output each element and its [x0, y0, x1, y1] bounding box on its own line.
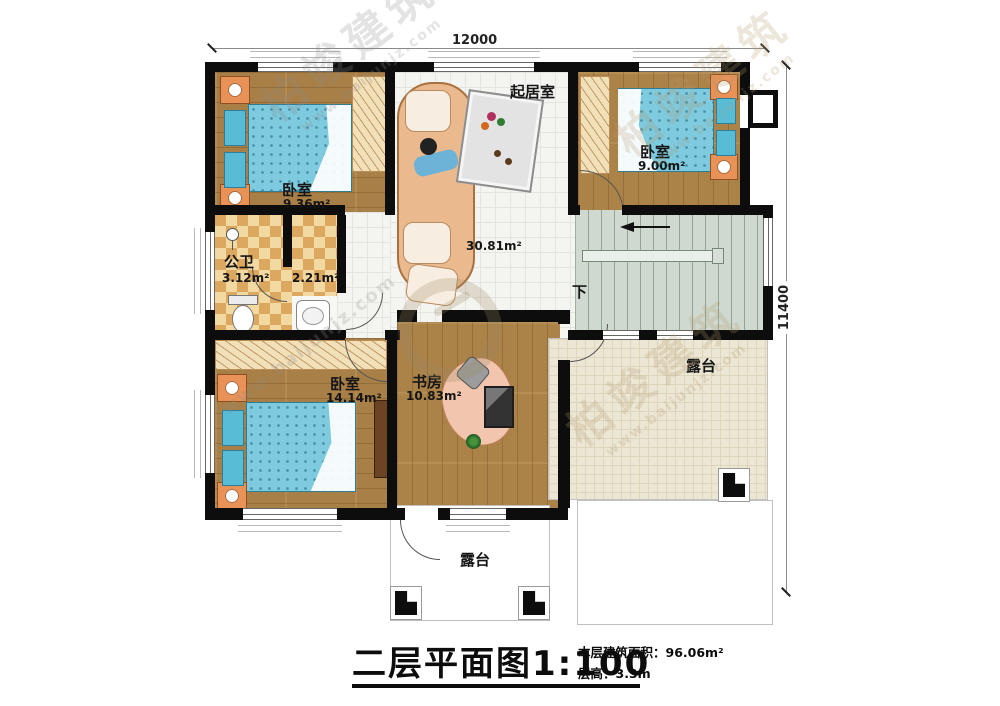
person-head [420, 138, 437, 155]
wall [534, 62, 639, 72]
window [639, 62, 721, 72]
eave-outline [577, 500, 773, 625]
floor-plan-drawing: 12000 11400 下 [0, 0, 1000, 706]
wall [558, 310, 570, 324]
computer-monitor [484, 386, 514, 428]
bed-pillow [716, 130, 736, 156]
wall [639, 330, 657, 340]
window-sill [193, 390, 202, 478]
flower [497, 118, 505, 126]
table-item [505, 158, 512, 165]
bedroom-bottom-left-area: 14.14m² [326, 392, 382, 406]
dimension-label-width: 12000 [448, 33, 501, 48]
nightstand [710, 74, 738, 100]
terrace-bottom-name: 露台 [460, 552, 490, 569]
coffee-table [456, 89, 544, 193]
shower-hose [232, 241, 233, 250]
bathroom-name: 公卫 [224, 254, 254, 271]
wall [438, 508, 450, 520]
terrace-right-name: 露台 [686, 358, 716, 375]
bedroom-top-right-area: 9.00m² [638, 160, 685, 174]
wall [397, 508, 405, 520]
wall [205, 508, 243, 520]
bathroom-area: 3.12m² [222, 272, 269, 286]
bed-pillow [222, 410, 244, 446]
wardrobe [352, 76, 388, 172]
flower [487, 112, 496, 121]
closet-area: 2.21m² [292, 272, 339, 286]
sink-basin [302, 307, 324, 325]
window [450, 508, 506, 520]
wall [568, 205, 580, 215]
stair-direction-arrow [620, 222, 634, 232]
toilet-tank [228, 295, 258, 305]
wall [740, 128, 750, 215]
stairs-down-label: 下 [572, 284, 587, 301]
bay-niche [748, 90, 778, 128]
wall [205, 330, 345, 340]
window-sill [633, 50, 727, 59]
wall [693, 330, 770, 340]
bed-pillow [224, 152, 246, 188]
window [603, 330, 639, 340]
sofa-cushion [405, 263, 460, 308]
wall [387, 330, 397, 520]
study-area: 10.83m² [406, 390, 462, 404]
window-sill [238, 524, 342, 533]
stair-open-edge [575, 215, 576, 330]
nightstand [217, 482, 247, 510]
tv-cabinet [374, 400, 388, 478]
stair-direction-line [634, 226, 670, 228]
bed-pillow [716, 98, 736, 124]
toilet [232, 305, 254, 333]
living-room-area: 30.81m² [466, 240, 522, 254]
window [205, 232, 215, 310]
wall [763, 205, 773, 218]
wall [622, 205, 770, 215]
flower [481, 122, 489, 130]
floor-height-info: 层高：3.3m [578, 663, 651, 682]
window [258, 62, 333, 72]
wall [568, 62, 578, 215]
stairs-floor [575, 210, 765, 338]
wall [385, 62, 395, 215]
pillar [718, 468, 750, 502]
shower-head [226, 228, 239, 241]
window [205, 395, 215, 473]
wall [442, 310, 568, 322]
sofa-cushion [405, 90, 451, 132]
title-underline [352, 684, 640, 688]
stair-newel [712, 248, 724, 264]
nightstand [217, 374, 247, 402]
nightstand [220, 76, 250, 104]
table-item [494, 150, 501, 157]
stair-handrail [582, 250, 718, 262]
window [243, 508, 337, 520]
wardrobe [580, 76, 610, 174]
plant [466, 434, 481, 449]
wall [397, 310, 417, 322]
pillar [518, 586, 550, 620]
window-sill [193, 228, 202, 314]
bed-pillow [224, 110, 246, 146]
pillar [390, 586, 422, 620]
wall [568, 330, 603, 340]
window [763, 218, 773, 286]
window [434, 62, 534, 72]
sofa-cushion [403, 222, 451, 264]
window-sill [250, 50, 340, 59]
bedroom-top-left-area: 9.36m² [283, 198, 330, 212]
wall [337, 508, 397, 520]
wall [333, 62, 434, 72]
window [657, 330, 693, 340]
living-room-name: 起居室 [510, 84, 555, 101]
window-sill [446, 524, 510, 533]
window-sill [428, 50, 540, 59]
wall [558, 360, 570, 508]
bed-pillow [222, 450, 244, 486]
wall [283, 215, 292, 267]
wall [205, 310, 215, 395]
nightstand [710, 154, 738, 180]
wall [506, 508, 568, 520]
floor-area-info: 本层建筑面积：96.06m² [578, 642, 724, 661]
dimension-line-top [212, 48, 765, 49]
dimension-label-height: 11400 [777, 281, 792, 334]
